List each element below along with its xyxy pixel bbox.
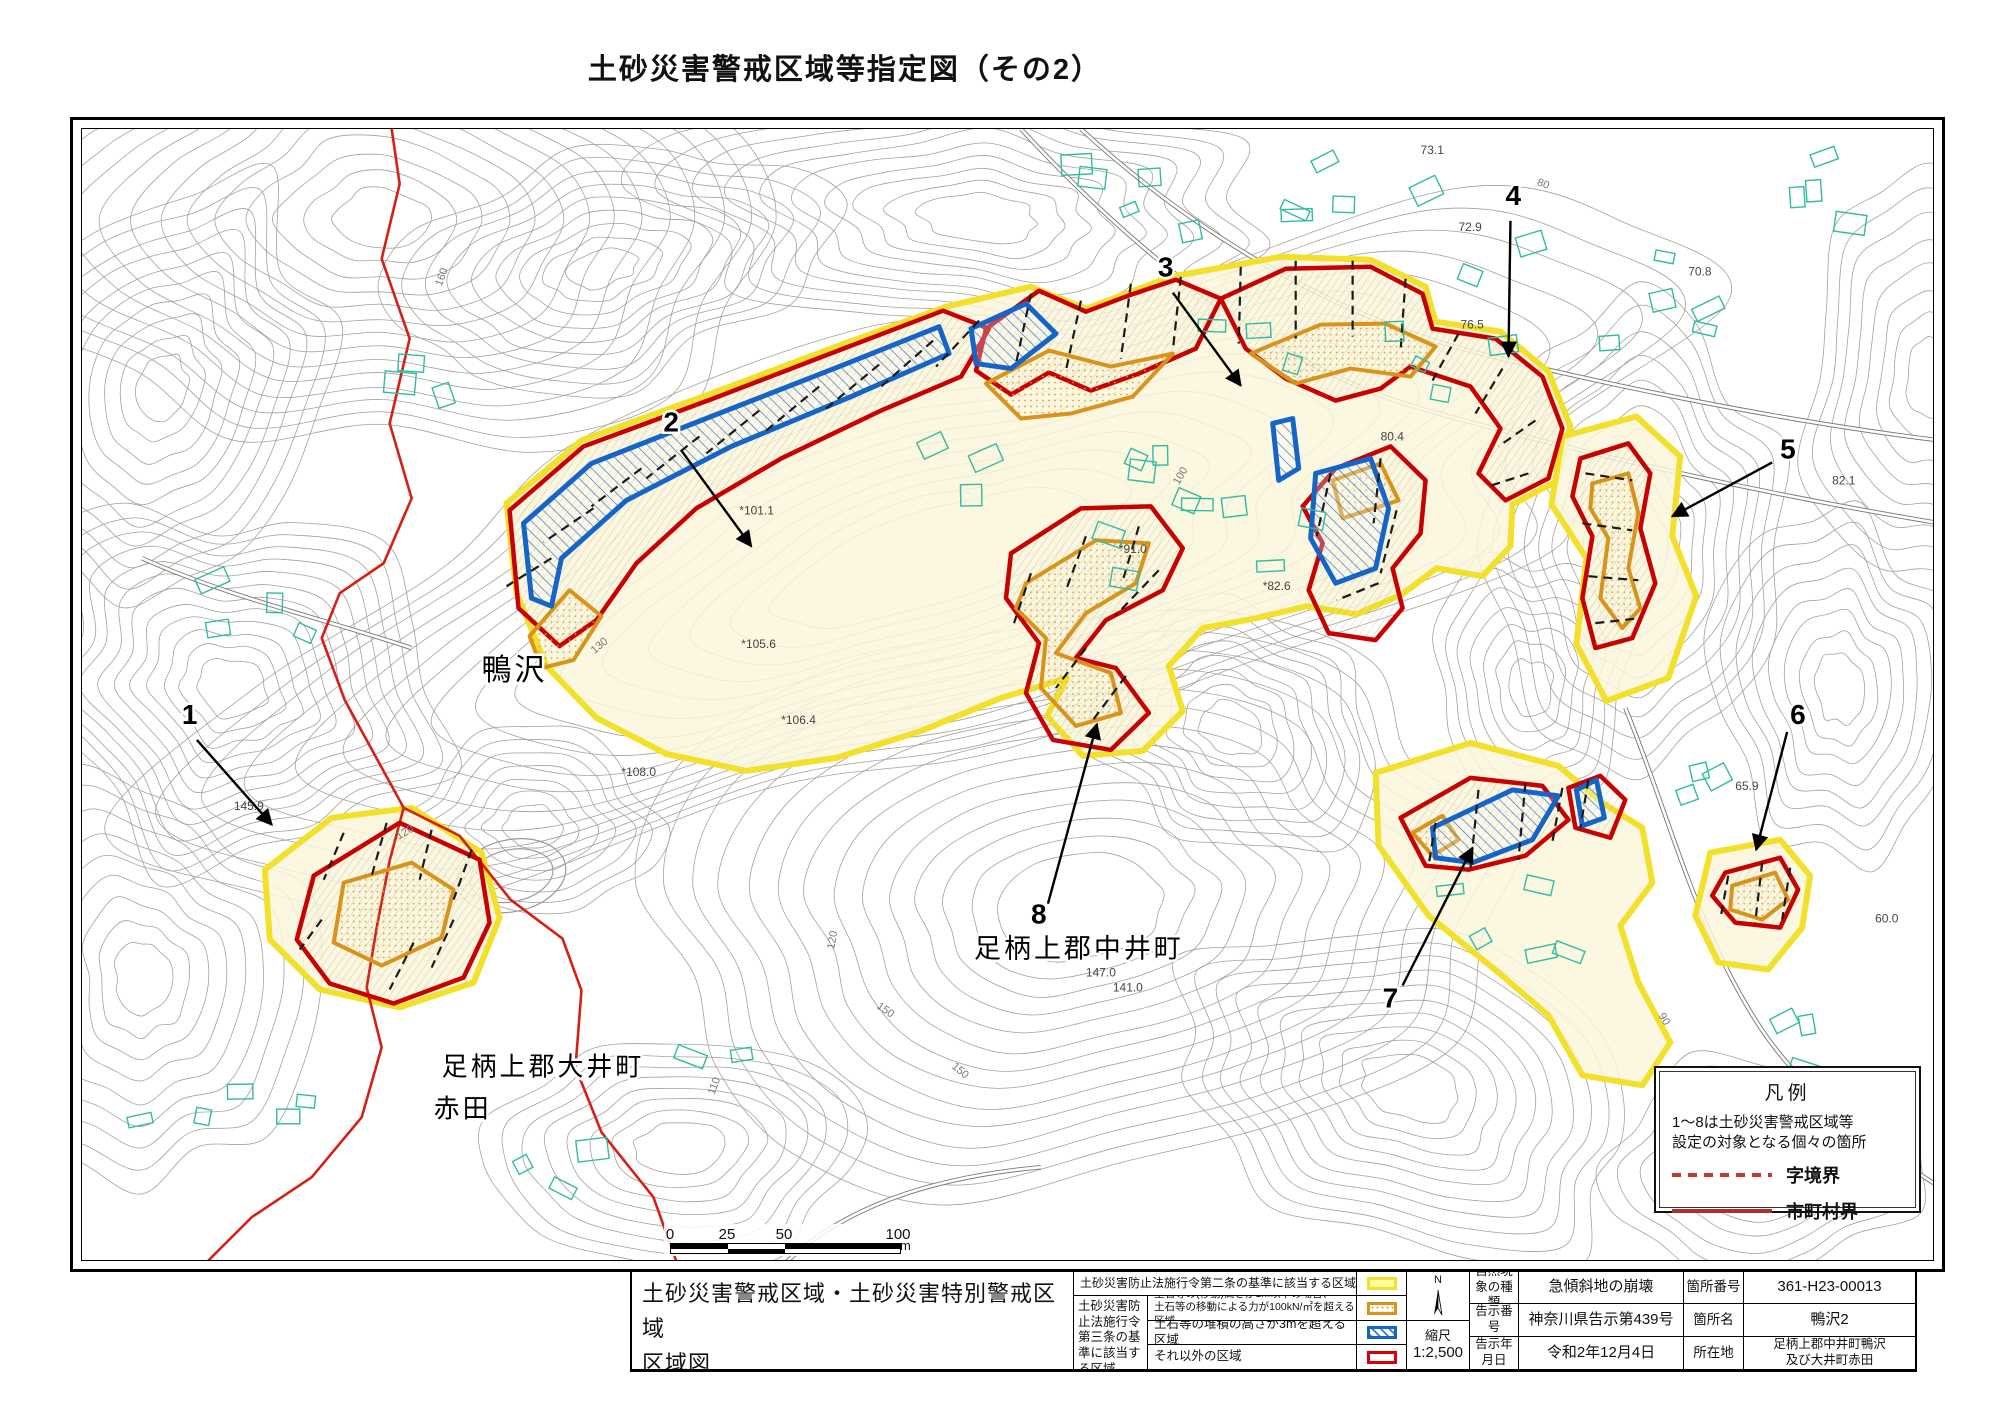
spot-elevation: 147.0 xyxy=(1086,966,1116,980)
solid-line-sample xyxy=(1672,1209,1772,1213)
scale-segment xyxy=(785,1249,900,1254)
law2-zone-label: 土砂災害防止法施行令第二条の基準に該当する区域 xyxy=(1074,1272,1357,1296)
legend-row-municipal-boundary: 市町村界 xyxy=(1672,1198,1915,1224)
law3-zone-label: それ以外の区域 xyxy=(1148,1345,1357,1369)
spot-elevation: 73.1 xyxy=(1421,143,1445,157)
zone-swatch-cell xyxy=(1357,1296,1407,1321)
area-marker-number: 3 xyxy=(1158,252,1174,283)
spot-elevation: 82.1 xyxy=(1832,473,1856,487)
orange-zone-swatch xyxy=(1367,1302,1397,1315)
blue-zone-swatch xyxy=(1367,1326,1397,1339)
scale-segment xyxy=(728,1249,785,1254)
zone-swatch-cell xyxy=(1357,1272,1407,1296)
scale-bar-unit: m xyxy=(900,1238,911,1253)
spot-elevation: *101.1 xyxy=(739,503,774,517)
red-zone-swatch xyxy=(1367,1351,1397,1364)
info-value2-0: 361-H23-00013 xyxy=(1744,1272,1915,1304)
spot-elevation: 60.0 xyxy=(1875,912,1899,926)
municipal-boundary-label: 市町村界 xyxy=(1786,1198,1858,1224)
yellow-zone-swatch xyxy=(1367,1277,1397,1290)
law3-zone-label: 土石等の(移動)高さが1m以下の場合、土石等の移動による力が100kN/㎡を超え… xyxy=(1148,1296,1357,1321)
scale-label: 縮尺 xyxy=(1425,1328,1451,1344)
spot-elevation: *105.6 xyxy=(741,637,776,651)
info-header-0: 自然現象の種類 xyxy=(1470,1272,1519,1304)
place-label: 赤田 xyxy=(434,1093,492,1123)
legend-note-line2: 設定の対象となる個々の箇所 xyxy=(1672,1134,1867,1151)
place-label: 足柄上郡中井町 xyxy=(974,934,1184,964)
map-doc-title: 土砂災害警戒区域・土砂災害特別警戒区域区域図 xyxy=(632,1272,1074,1369)
area-marker-number: 7 xyxy=(1383,982,1399,1013)
page: 土砂災害警戒区域等指定図（その2） 73.172.976.570.880.4*9… xyxy=(0,0,2001,1418)
info-header2-1: 箇所名 xyxy=(1684,1304,1744,1337)
scale-segment xyxy=(671,1249,728,1254)
place-label: 鴨沢 xyxy=(482,654,548,687)
contour-elevation-label: 160 xyxy=(433,266,451,287)
scale-bar-graphic xyxy=(670,1243,901,1254)
law3-zone-label: 土石等の堆積の高さが3mを超える区域 xyxy=(1148,1321,1357,1345)
aza-boundary-label: 字境界 xyxy=(1786,1162,1840,1188)
spot-elevation: *91.0 xyxy=(1119,542,1147,556)
legend-title: 凡例 xyxy=(1660,1078,1915,1105)
spot-elevation: 72.9 xyxy=(1459,220,1483,234)
area-marker-number: 1 xyxy=(182,699,198,730)
contour-elevation-label: 120 xyxy=(825,930,840,950)
north-label: N xyxy=(1434,1274,1442,1288)
spot-elevation: 80.4 xyxy=(1381,429,1405,443)
spot-elevation: 65.9 xyxy=(1735,779,1759,793)
area-marker-number: 8 xyxy=(1031,899,1047,930)
info-header-1: 告示番号 xyxy=(1470,1304,1519,1337)
map-legend-border: 凡例 1～8は土砂災害警戒区域等 設定の対象となる個々の箇所 字境界 市町村界 xyxy=(1659,1071,1916,1208)
info-header2-2: 所在地 xyxy=(1684,1337,1744,1369)
dashed-line-sample xyxy=(1672,1173,1772,1177)
info-header2-0: 箇所番号 xyxy=(1684,1272,1744,1304)
info-value-2: 令和2年12月4日 xyxy=(1519,1337,1684,1369)
area-marker-number: 5 xyxy=(1780,433,1796,464)
legend-note: 1～8は土砂災害警戒区域等 設定の対象となる個々の箇所 xyxy=(1672,1113,1915,1152)
scale-bar: 02550100 m xyxy=(664,1224,916,1256)
info-value-1: 神奈川県告示第439号 xyxy=(1519,1304,1684,1337)
map-scale-cell: 縮尺1:2,500 xyxy=(1407,1321,1470,1369)
info-header-2: 告示年月日 xyxy=(1470,1337,1519,1369)
scale-tick-label: 0 xyxy=(666,1226,674,1243)
map-canvas: 73.172.976.570.880.4*91.0*82.6*101.1145.… xyxy=(81,128,1934,1261)
info-value-0: 急傾斜地の崩壊 xyxy=(1519,1272,1684,1304)
contour-elevation-label: 150 xyxy=(949,1060,971,1081)
north-arrow-icon xyxy=(1428,1288,1448,1318)
scale-tick-label: 25 xyxy=(719,1226,736,1243)
area-marker-arrow xyxy=(1048,724,1097,904)
spot-elevation: 70.8 xyxy=(1688,265,1712,279)
law3-zone-header: 土砂災害防止法施行令第三条の基準に該当する区域 xyxy=(1074,1296,1148,1369)
area-marker-number: 6 xyxy=(1790,699,1806,730)
spot-elevation: 141.0 xyxy=(1113,980,1143,994)
legend-row-aza-boundary: 字境界 xyxy=(1672,1162,1915,1188)
info-table: 土砂災害警戒区域・土砂災害特別警戒区域区域図土砂災害防止法施行令第二条の基準に該… xyxy=(630,1270,1917,1372)
spot-elevation: *108.0 xyxy=(621,765,656,779)
scale-tick-label: 50 xyxy=(776,1226,793,1243)
contour-elevation-label: 150 xyxy=(874,1000,896,1020)
spot-elevation: 76.5 xyxy=(1461,318,1485,332)
scale-bar-labels: 02550100 xyxy=(670,1226,910,1243)
zone-swatch-cell xyxy=(1357,1321,1407,1345)
spot-elevation: *106.4 xyxy=(781,713,816,727)
zone-swatch-cell xyxy=(1357,1345,1407,1369)
area-marker-number: 2 xyxy=(663,406,679,437)
info-value2-1: 鴨沢2 xyxy=(1744,1304,1915,1337)
info-value2-2: 足柄上郡中井町鴨沢及び大井町赤田 xyxy=(1744,1337,1915,1369)
scale-value: 1:2,500 xyxy=(1413,1344,1463,1363)
map-legend-box: 凡例 1～8は土砂災害警戒区域等 設定の対象となる個々の箇所 字境界 市町村界 xyxy=(1654,1066,1921,1213)
area-marker-arrow xyxy=(1756,732,1787,850)
spot-elevation: *82.6 xyxy=(1263,579,1291,593)
page-title: 土砂災害警戒区域等指定図（その2） xyxy=(588,46,1102,88)
place-label: 足柄上郡大井町 xyxy=(442,1051,645,1081)
area-marker-number: 4 xyxy=(1505,180,1521,211)
north-arrow-cell: N xyxy=(1407,1272,1470,1321)
legend-note-line1: 1～8は土砂災害警戒区域等 xyxy=(1672,1114,1854,1131)
map-frame: 73.172.976.570.880.4*91.0*82.6*101.1145.… xyxy=(70,117,1945,1272)
